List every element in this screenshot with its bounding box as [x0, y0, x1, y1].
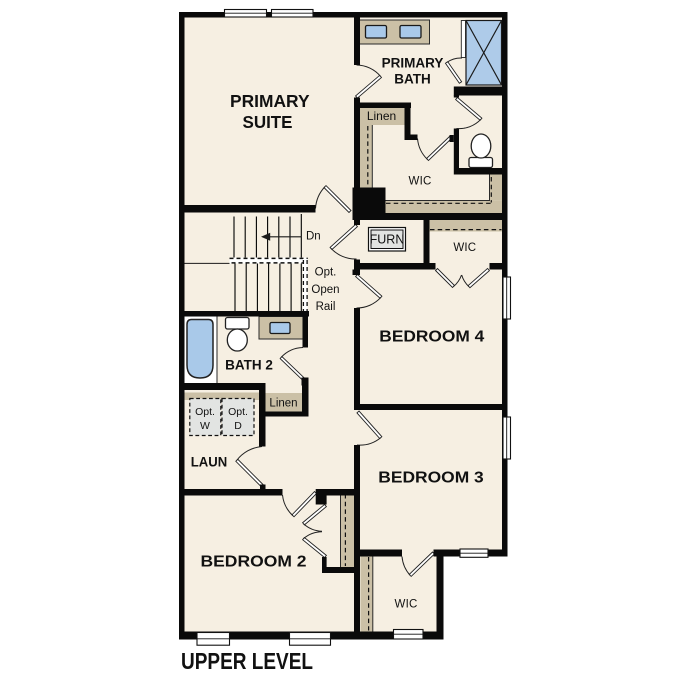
svg-text:Opt.: Opt.: [315, 267, 337, 279]
svg-text:SUITE: SUITE: [243, 112, 293, 132]
svg-text:D: D: [234, 420, 242, 432]
svg-text:Open: Open: [311, 284, 339, 296]
svg-text:WIC: WIC: [409, 176, 432, 188]
svg-text:WIC: WIC: [395, 599, 418, 611]
svg-text:BEDROOM 4: BEDROOM 4: [379, 329, 484, 346]
svg-text:UPPER LEVEL: UPPER LEVEL: [181, 648, 313, 674]
svg-text:BEDROOM 2: BEDROOM 2: [201, 554, 307, 571]
svg-text:Rail: Rail: [316, 301, 336, 313]
svg-text:Dn: Dn: [306, 231, 321, 243]
svg-text:W: W: [200, 420, 210, 432]
svg-text:WIC: WIC: [453, 242, 476, 254]
svg-text:PRIMARY: PRIMARY: [230, 91, 310, 111]
svg-text:BEDROOM 3: BEDROOM 3: [378, 470, 484, 487]
svg-text:Opt.: Opt.: [228, 406, 248, 418]
svg-text:PRIMARY: PRIMARY: [382, 56, 444, 71]
svg-text:LAUN: LAUN: [191, 455, 228, 470]
svg-text:BATH: BATH: [394, 72, 431, 87]
svg-text:Linen: Linen: [269, 398, 297, 410]
svg-text:Linen: Linen: [367, 109, 396, 123]
svg-text:BATH 2: BATH 2: [225, 358, 273, 373]
svg-text:Opt.: Opt.: [195, 406, 215, 418]
svg-text:FURN: FURN: [370, 233, 405, 247]
